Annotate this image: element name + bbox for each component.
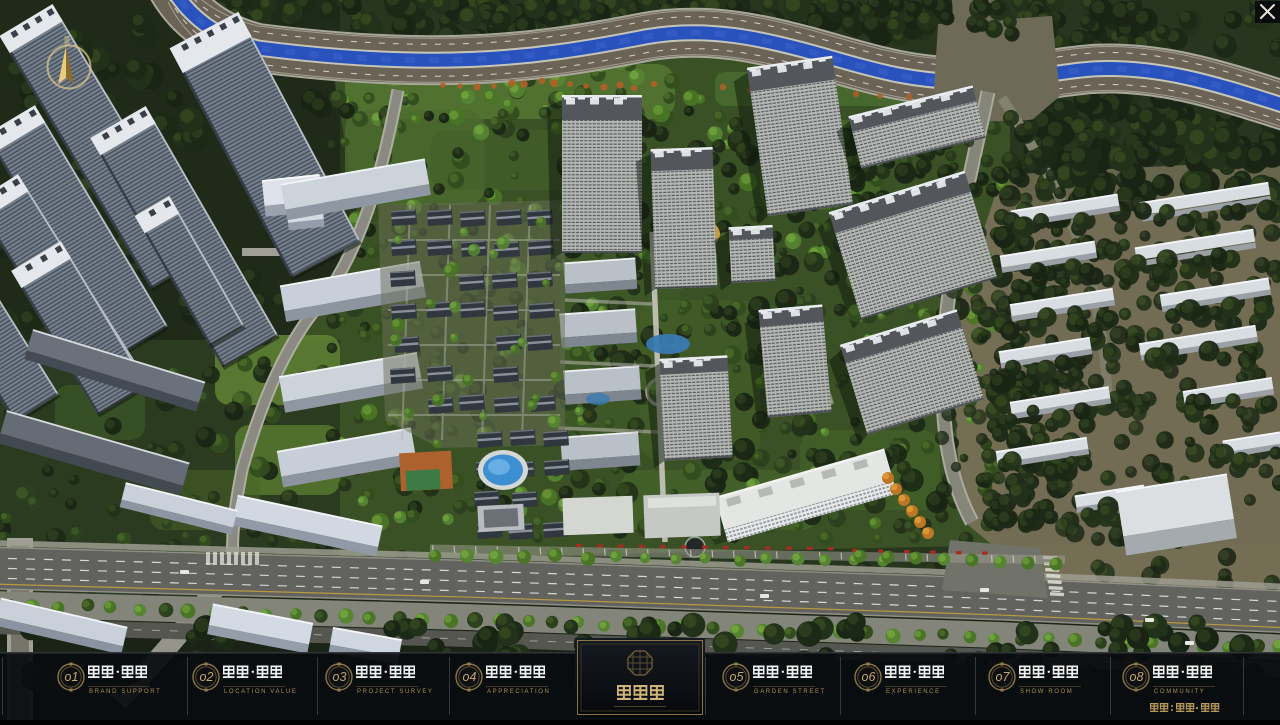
svg-text:o5: o5 xyxy=(730,670,744,684)
svg-text:PROJECT SURVEY: PROJECT SURVEY xyxy=(357,689,434,695)
svg-text:EXPERIENCE: EXPERIENCE xyxy=(886,689,941,695)
svg-text:o6: o6 xyxy=(862,670,876,684)
svg-text:o3: o3 xyxy=(333,670,347,684)
svg-text:o8: o8 xyxy=(1130,670,1144,684)
svg-text:COMMUNITY: COMMUNITY xyxy=(1154,689,1205,695)
svg-text:LOCATION VALUE: LOCATION VALUE xyxy=(224,689,298,695)
svg-text:o1: o1 xyxy=(65,670,79,684)
svg-text:SHOW ROOM: SHOW ROOM xyxy=(1020,689,1073,695)
svg-text:APPRECIATION: APPRECIATION xyxy=(487,689,550,695)
svg-text:o7: o7 xyxy=(996,670,1011,684)
svg-text:BRAND SUPPORT: BRAND SUPPORT xyxy=(89,689,161,695)
svg-text:GARDEN STREET: GARDEN STREET xyxy=(754,689,826,695)
svg-text:o2: o2 xyxy=(200,670,214,684)
svg-text:o4: o4 xyxy=(463,670,477,684)
